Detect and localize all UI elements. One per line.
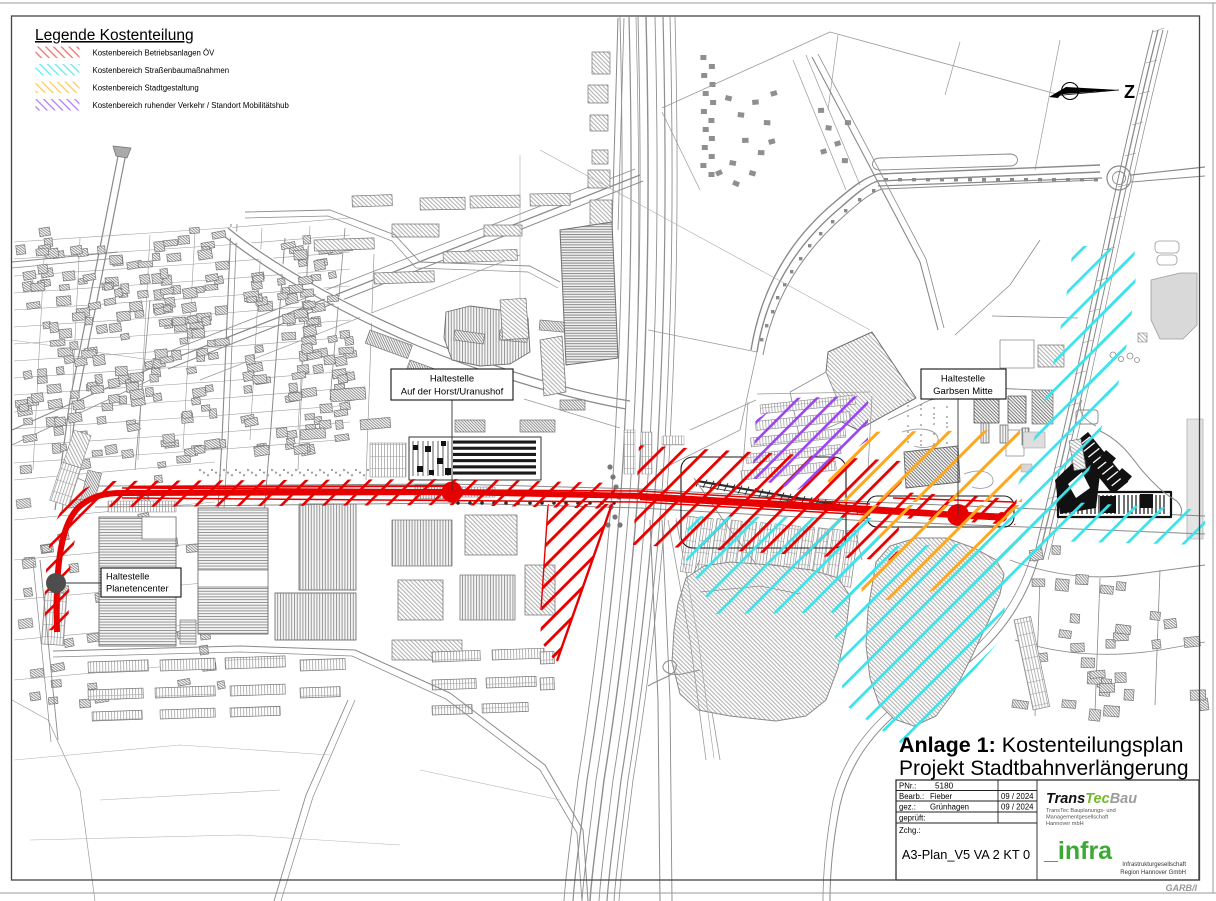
svg-text:Infrastrukturgesellschaft: Infrastrukturgesellschaft — [1122, 862, 1186, 868]
svg-text:Garbsen Mitte: Garbsen Mitte — [933, 386, 993, 397]
svg-text:gez.:: gez.: — [899, 803, 916, 812]
svg-text:TransTec Bauplanungs- und: TransTec Bauplanungs- und — [1046, 808, 1116, 814]
svg-text:Hannover mbH: Hannover mbH — [1046, 821, 1084, 827]
svg-text:Bearb.:: Bearb.: — [899, 792, 924, 801]
svg-text:Kostenbereich Betriebsanlagen: Kostenbereich Betriebsanlagen ÖV — [93, 49, 216, 58]
svg-text:Region Hannover GmbH: Region Hannover GmbH — [1120, 870, 1186, 876]
svg-text:Zchg.:: Zchg.: — [899, 826, 921, 835]
svg-text:Kostenbereich Stadtgestaltung: Kostenbereich Stadtgestaltung — [93, 84, 199, 93]
svg-text:A3-Plan_V5 VA 2 KT 0: A3-Plan_V5 VA 2 KT 0 — [902, 847, 1030, 862]
svg-text:Haltestelle: Haltestelle — [941, 374, 985, 385]
svg-text:_infra: _infra — [1043, 837, 1113, 865]
svg-text:GARB/I: GARB/I — [1166, 883, 1198, 893]
svg-text:Projekt Stadtbahnverlängerung: Projekt Stadtbahnverlängerung — [899, 757, 1189, 780]
svg-text:TransTecBau: TransTecBau — [1046, 791, 1137, 807]
svg-text:Kostenbereich ruhender Verkehr: Kostenbereich ruhender Verkehr / Standor… — [93, 101, 290, 110]
svg-text:Kostenbereich Straßenbaumaßnah: Kostenbereich Straßenbaumaßnahmen — [93, 66, 230, 75]
svg-text:Auf der Horst/Uranushof: Auf der Horst/Uranushof — [401, 387, 504, 398]
svg-text:PNr.:: PNr.: — [899, 782, 916, 791]
svg-text:Haltestelle: Haltestelle — [430, 374, 474, 385]
svg-text:Anlage 1: Kostenteilungsplan: Anlage 1: Kostenteilungsplan — [899, 733, 1183, 757]
svg-text:Z: Z — [1124, 82, 1135, 102]
svg-text:Legende Kostenteilung: Legende Kostenteilung — [35, 27, 194, 44]
svg-text:Planetencenter: Planetencenter — [106, 584, 169, 594]
svg-text:5180: 5180 — [935, 782, 954, 791]
svg-text:Managementgesellschaft: Managementgesellschaft — [1046, 815, 1109, 821]
svg-text:09 / 2024: 09 / 2024 — [1001, 803, 1034, 812]
svg-text:Fieber: Fieber — [930, 792, 953, 801]
svg-text:Grünhagen: Grünhagen — [930, 803, 969, 812]
svg-text:Haltestelle: Haltestelle — [106, 572, 149, 582]
svg-text:09 / 2024: 09 / 2024 — [1001, 792, 1034, 801]
svg-text:geprüft:: geprüft: — [899, 814, 925, 823]
